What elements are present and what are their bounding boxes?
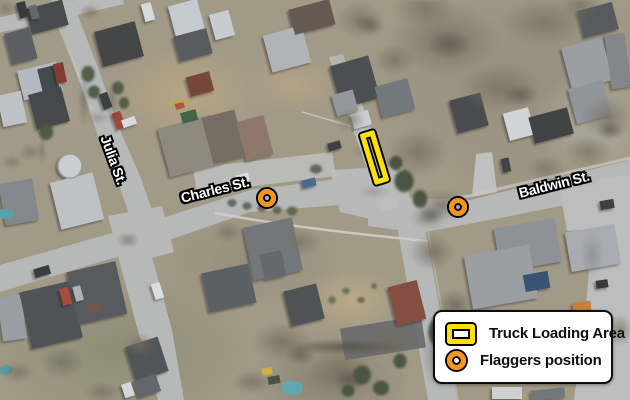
flagger-position-icon xyxy=(447,351,466,370)
truck-loading-area-icon xyxy=(447,324,475,344)
flagger-marker-baldwin xyxy=(449,198,467,216)
legend-label-flaggers-position: Flaggers position xyxy=(480,352,602,369)
legend: Truck Loading Area Flaggers position xyxy=(433,310,613,384)
legend-row-flaggers-position: Flaggers position xyxy=(445,349,601,372)
legend-row-truck-loading-area: Truck Loading Area xyxy=(445,322,601,346)
flagger-marker-charles xyxy=(258,189,276,207)
roadwork-aerial-map: Julia St. Charles St. Baldwin St. Truck … xyxy=(0,0,630,400)
legend-label-truck-loading-area: Truck Loading Area xyxy=(489,325,625,342)
